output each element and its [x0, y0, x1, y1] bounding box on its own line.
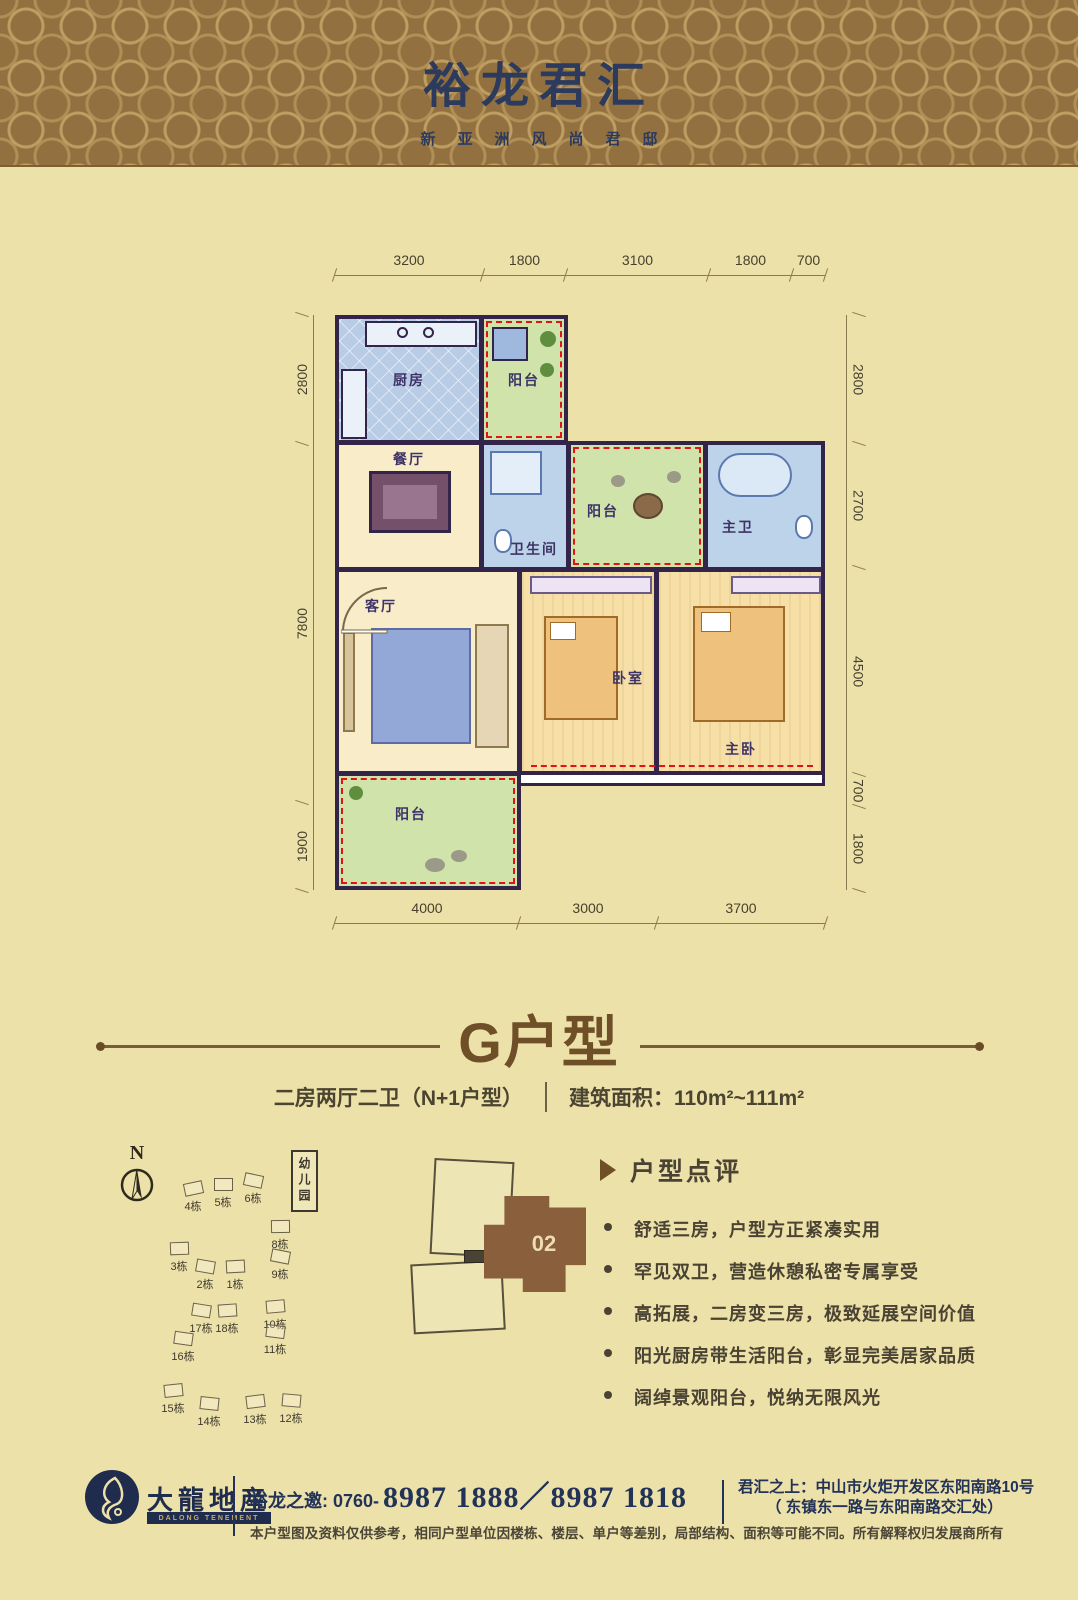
landscape-stone-icon [451, 850, 467, 862]
bathtub-icon [718, 453, 792, 497]
header-banner: 裕龙君汇 新亚洲风尚君邸 [0, 0, 1078, 167]
dim-value: 1900 [294, 831, 310, 862]
room-bath: 卫生间 [480, 441, 570, 571]
room-label: 主卧 [725, 739, 757, 759]
dining-table-top-icon [383, 485, 437, 519]
room-label: 餐厅 [393, 449, 425, 469]
building-footprint-icon [245, 1394, 265, 1409]
phone-numbers: 8987 1888／8987 1818 [383, 1472, 687, 1516]
building-footprint-icon [173, 1331, 194, 1347]
address-label: 君汇之上： [738, 1479, 816, 1496]
building-footprint-icon [270, 1220, 289, 1233]
unit-area: 建筑面积：110m²~111m² [569, 1082, 804, 1112]
kindergarten-label: 幼儿园 [291, 1150, 318, 1212]
site-building: 18栋 [207, 1304, 247, 1337]
site-building: 11栋 [255, 1325, 295, 1358]
washer-icon [492, 327, 528, 361]
dim-segment: 700 [846, 775, 870, 807]
dalong-logo-icon [85, 1470, 139, 1524]
toilet-icon [795, 515, 813, 539]
extension-dashed-line [531, 765, 813, 767]
dim-segment: 2800 [290, 315, 314, 444]
burner-icon [423, 327, 434, 338]
sink-counter-icon [341, 369, 367, 439]
phone-label: 裕龙之邀: 0760- [250, 1487, 379, 1513]
site-building: 9栋 [260, 1250, 300, 1283]
title-right-line [640, 1045, 982, 1048]
landscape-stone-icon [611, 475, 625, 487]
title-left-line [98, 1045, 440, 1048]
landscape-stone-icon [633, 493, 663, 519]
review-bullet: 罕见双卫，营造休憩私密专属享受 [600, 1258, 1020, 1284]
wardrobe-icon [530, 576, 652, 594]
key-plan: 02 [400, 1150, 575, 1340]
disclaimer-text: 本户型图及资料仅供参考，相同户型单位因楼栋、楼层、单户等差别，局部结构、面积等可… [250, 1522, 1025, 1542]
dim-value: 3000 [572, 900, 603, 916]
landscape-stone-icon [667, 471, 681, 483]
key-plan-core-icon [464, 1250, 486, 1263]
dim-segment: 1900 [290, 803, 314, 890]
site-building: 15栋 [153, 1384, 193, 1417]
site-building: 13栋 [235, 1395, 275, 1428]
building-footprint-icon [199, 1396, 219, 1411]
dim-segment: 4500 [846, 568, 870, 775]
dim-value: 2700 [851, 490, 867, 521]
dim-value: 3700 [725, 900, 756, 916]
room-master-bedroom: 主卧 [655, 568, 825, 775]
building-footprint-icon [195, 1258, 216, 1274]
pillow-icon [550, 622, 576, 640]
building-label: 12栋 [279, 1413, 302, 1425]
rug-icon [371, 628, 471, 744]
spec-divider [545, 1082, 547, 1112]
line-dot [96, 1042, 105, 1051]
address-line2: （ 东镇东一路与东阳南路交汇处） [738, 1498, 1034, 1518]
room-label: 主卫 [722, 517, 754, 537]
building-label: 14栋 [197, 1416, 220, 1428]
dim-segment: 4000 [335, 900, 519, 924]
room-balcony-south: 阳台 [335, 772, 521, 890]
plant-icon [349, 786, 363, 800]
dim-value: 4500 [851, 656, 867, 687]
landscape-stone-icon [425, 858, 445, 872]
dim-segment: 2700 [846, 444, 870, 568]
building-label: 4栋 [184, 1201, 201, 1213]
address-block: 君汇之上：中山市火炬开发区东阳南路10号 （ 东镇东一路与东阳南路交汇处） [738, 1478, 1034, 1518]
dim-value: 700 [797, 252, 820, 268]
site-building: 14栋 [189, 1397, 229, 1430]
building-footprint-icon [182, 1180, 203, 1197]
room-label: 卫生间 [510, 539, 558, 559]
site-building: 1栋 [215, 1260, 255, 1293]
building-footprint-icon [242, 1172, 263, 1189]
pillow-icon [701, 612, 731, 632]
triangle-marker-icon [600, 1159, 616, 1181]
dim-value: 1800 [509, 252, 540, 268]
site-building: 16栋 [163, 1332, 203, 1365]
poster-page: 裕龙君汇 新亚洲风尚君邸 3200 1800 3100 1800 700 280… [0, 0, 1078, 1600]
site-building: 8栋 [260, 1220, 300, 1253]
building-footprint-icon [163, 1383, 183, 1398]
room-label: 阳台 [587, 501, 619, 521]
building-label: 13栋 [243, 1414, 266, 1426]
footer: 大龍地産 DALONG TENEMENT 裕龙之邀: 0760- 8987 18… [0, 1450, 1078, 1600]
room-bedroom: 卧室 [518, 568, 658, 775]
review-bullet: 高拓展，二房变三房，极致延展空间价值 [600, 1300, 1020, 1326]
address-line1: 君汇之上：中山市火炬开发区东阳南路10号 [738, 1478, 1034, 1498]
dim-value: 3200 [393, 252, 424, 268]
building-footprint-icon [217, 1303, 237, 1317]
building-label: 15栋 [161, 1403, 184, 1415]
room-master-bath: 主卫 [704, 441, 825, 571]
building-footprint-icon [265, 1324, 285, 1339]
dim-value: 3100 [622, 252, 653, 268]
sofa-icon [475, 624, 509, 748]
dim-line-right: 2800 2700 4500 700 1800 [846, 315, 870, 890]
dim-value: 7800 [294, 608, 310, 639]
room-living: 客厅 [335, 568, 521, 775]
site-building: 6栋 [233, 1174, 273, 1207]
room-dining: 餐厅 [335, 441, 483, 571]
building-label: 5栋 [214, 1197, 231, 1209]
building-label: 18栋 [215, 1323, 238, 1335]
review-title-row: 户型点评 [600, 1152, 1020, 1188]
dim-segment: 1800 [709, 252, 792, 276]
dim-value: 1800 [851, 833, 867, 864]
dim-segment: 1800 [846, 807, 870, 890]
building-footprint-icon [225, 1260, 245, 1274]
dim-value: 4000 [411, 900, 442, 916]
room-label: 卧室 [612, 668, 644, 688]
compass-n-label: N [115, 1142, 159, 1165]
dim-value: 2800 [294, 364, 310, 395]
tv-cabinet-icon [343, 632, 355, 732]
review-bullet-list: 舒适三房，户型方正紧凑实用 罕见双卫，营造休憩私密专属享受 高拓展，二房变三房，… [600, 1216, 1020, 1410]
unit-spec: 二房两厅二卫（N+1户型） [274, 1082, 523, 1112]
dim-value: 1800 [735, 252, 766, 268]
unit-spec-row: 二房两厅二卫（N+1户型） 建筑面积：110m²~111m² [0, 1082, 1078, 1112]
room-label: 阳台 [508, 370, 540, 390]
phone-row: 裕龙之邀: 0760- 8987 1888／8987 1818 [250, 1472, 687, 1516]
unit-title-section: G户型 二房两厅二卫（N+1户型） 建筑面积：110m²~111m² [0, 998, 1078, 1112]
site-plan: N 幼儿园 4栋5栋6栋8栋9栋3栋2栋1栋17栋18栋16栋10栋11栋15栋… [95, 1140, 415, 1435]
unit-title: G户型 [458, 1011, 620, 1074]
dim-segment: 7800 [290, 444, 314, 803]
dim-line-left: 2800 7800 1900 [290, 315, 314, 890]
shower-icon [490, 451, 542, 495]
stove-counter-icon [365, 321, 477, 347]
wardrobe-icon [731, 576, 821, 594]
site-building: 12栋 [271, 1394, 311, 1427]
dim-line-bottom: 4000 3000 3700 [335, 900, 825, 924]
room-balcony-center: 阳台 [567, 441, 707, 571]
dim-segment: 3000 [519, 900, 657, 924]
dim-segment: 3200 [335, 252, 483, 276]
building-footprint-icon [169, 1242, 188, 1256]
building-label: 11栋 [264, 1344, 286, 1356]
building-footprint-icon [281, 1393, 301, 1408]
line-dot [975, 1042, 984, 1051]
floor-plan: 厨房 阳台 餐厅 卫生间 阳台 [335, 315, 825, 890]
dim-segment: 3700 [657, 900, 825, 924]
brand-block: 裕龙君汇 新亚洲风尚君邸 [0, 46, 1078, 149]
plant-icon [540, 363, 554, 377]
project-title: 裕龙君汇 [0, 46, 1078, 116]
review-title: 户型点评 [630, 1152, 742, 1188]
dim-segment: 700 [792, 252, 825, 276]
building-label: 2栋 [196, 1279, 213, 1291]
building-label: 1栋 [226, 1279, 243, 1291]
footer-divider [233, 1476, 235, 1536]
building-label: 9栋 [271, 1269, 288, 1281]
plant-icon [540, 331, 556, 347]
room-label: 厨房 [393, 370, 425, 390]
building-label: 16栋 [171, 1351, 194, 1363]
building-label: 6栋 [244, 1193, 261, 1205]
room-balcony-north: 阳台 [480, 315, 568, 444]
review-bullet: 阳光厨房带生活阳台，彰显完美居家品质 [600, 1342, 1020, 1368]
review-bullet: 舒适三房，户型方正紧凑实用 [600, 1216, 1020, 1242]
compass: N [115, 1142, 159, 1210]
dim-value: 700 [851, 779, 867, 802]
burner-icon [397, 327, 408, 338]
compass-icon [117, 1165, 157, 1205]
review-bullet: 阔绰景观阳台，悦纳无限风光 [600, 1384, 1020, 1410]
project-slogan: 新亚洲风尚君邸 [0, 128, 1078, 149]
key-unit-label: 02 [532, 1231, 556, 1257]
dim-segment: 3100 [566, 252, 709, 276]
building-footprint-icon [269, 1248, 290, 1264]
unit-title-row: G户型 [0, 998, 1078, 1068]
building-footprint-icon [265, 1299, 285, 1314]
room-label: 阳台 [395, 804, 427, 824]
room-kitchen: 厨房 [335, 315, 483, 444]
dim-segment: 2800 [846, 315, 870, 444]
address-text: 中山市火炬开发区东阳南路10号 [816, 1479, 1035, 1496]
dim-value: 2800 [851, 364, 867, 395]
review-section: 户型点评 舒适三房，户型方正紧凑实用 罕见双卫，营造休憩私密专属享受 高拓展，二… [600, 1152, 1020, 1426]
bay-window-strip [518, 772, 825, 786]
footer-divider [722, 1480, 724, 1524]
dim-segment: 1800 [483, 252, 566, 276]
room-label: 客厅 [365, 596, 397, 616]
floor-plan-section: 3200 1800 3100 1800 700 2800 7800 1900 2… [0, 240, 1078, 985]
building-footprint-icon [214, 1178, 233, 1191]
dim-line-top: 3200 1800 3100 1800 700 [335, 252, 825, 276]
